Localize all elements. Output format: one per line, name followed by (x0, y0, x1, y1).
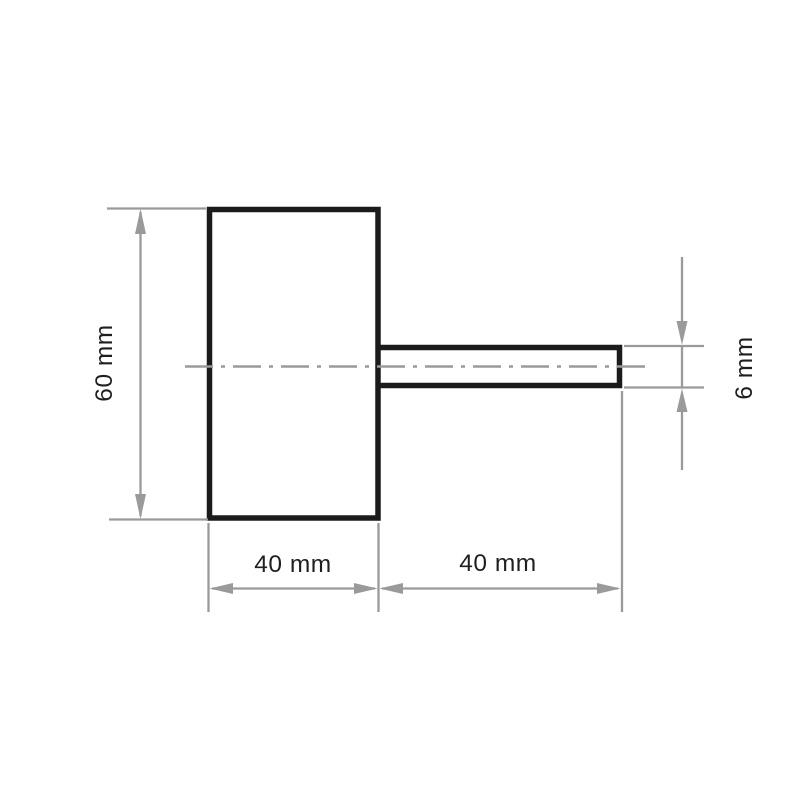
arrow-left-icon (210, 583, 234, 594)
arrow-left-icon (380, 583, 404, 594)
height-dimension-label: 60 mm (91, 324, 118, 401)
arrow-up-icon (677, 389, 688, 413)
shank-length-dimension-label: 40 mm (459, 550, 536, 577)
shank-length-dimension: 40 mm (380, 391, 623, 612)
body-width-dimension: 40 mm (209, 523, 379, 612)
arrow-right-icon (354, 583, 378, 594)
technical-drawing-canvas: 60 mm 40 mm 40 mm 6 mm (0, 0, 800, 800)
arrow-down-icon (135, 494, 146, 519)
arrow-right-icon (597, 583, 621, 594)
arrow-down-icon (677, 321, 688, 345)
body-outline (210, 210, 379, 519)
shank-diameter-dimension: 6 mm (624, 257, 758, 470)
body-width-dimension-label: 40 mm (254, 551, 331, 578)
shank-diameter-dimension-label: 6 mm (731, 336, 758, 399)
height-dimension: 60 mm (91, 209, 208, 520)
arrow-up-icon (135, 209, 146, 234)
dimension-drawing: 60 mm 40 mm 40 mm 6 mm (0, 0, 800, 800)
